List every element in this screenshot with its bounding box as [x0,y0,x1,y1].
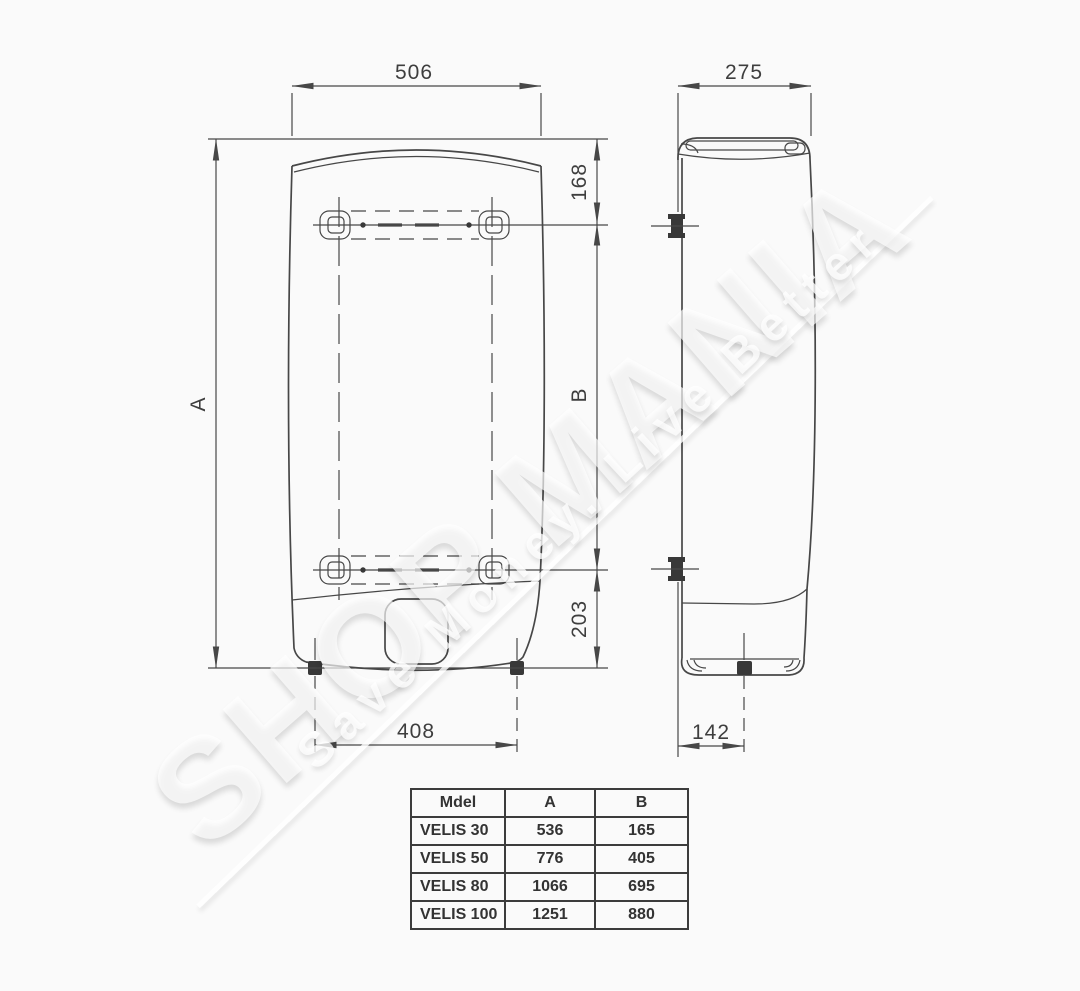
dim-506-label: 506 [395,61,433,84]
dim-142-label: 142 [692,721,730,744]
cell-a: 1251 [505,901,595,929]
cell-a: 776 [505,845,595,873]
cell-b: 165 [595,817,688,845]
side-cover-separator [682,589,807,604]
side-front-lower-edge [804,589,807,658]
front-top-cap-outer-arc [292,150,541,166]
dim-275-label: 275 [725,61,763,84]
dim-A-label: A [187,396,210,411]
cell-model: VELIS 30 [411,817,505,845]
cell-a: 1066 [505,873,595,901]
table-row: VELIS 80 1066 695 [411,873,688,901]
dim-B-label: B [568,387,591,402]
cell-model: VELIS 100 [411,901,505,929]
side-top-cap-inner [686,141,798,150]
front-right-edge [540,166,544,581]
dim-203-label: 203 [568,600,591,638]
table-row: VELIS 50 776 405 [411,845,688,873]
water-heater-dimension-sheet: 506 A 168 B 203 408 275 142 [0,0,1080,991]
cell-a: 536 [505,817,595,845]
header-b: B [595,789,688,817]
header-a: A [505,789,595,817]
side-view-drawing [651,138,815,758]
side-bottom-cap-detail-l2 [694,660,706,668]
table-header-row: Mdel A B [411,789,688,817]
model-dimension-table: Mdel A B VELIS 30 536 165 VELIS 50 776 4… [410,788,689,930]
side-top-cap-detail-left [681,144,698,153]
cell-b: 880 [595,901,688,929]
dim-168-label: 168 [568,163,591,201]
front-top-cap-seam-arc [294,157,539,173]
cell-model: VELIS 50 [411,845,505,873]
cell-model: VELIS 80 [411,873,505,901]
front-view-drawing [288,150,608,757]
dimension-annotations: 506 A 168 B 203 408 275 142 [187,61,811,757]
front-right-lower-edge [511,581,540,663]
side-pipe [737,661,752,675]
cell-b: 405 [595,845,688,873]
header-model: Mdel [411,789,505,817]
side-front-edge [807,159,815,589]
table-row: VELIS 30 536 165 [411,817,688,845]
side-upper-bracket [651,214,699,238]
upper-wall-bracket [313,211,608,239]
table-row: VELIS 100 1251 880 [411,901,688,929]
side-lower-bracket [651,557,699,581]
front-left-edge [288,166,306,662]
side-top-cap-detail-right [785,143,805,154]
lower-wall-bracket [313,556,608,584]
cell-b: 695 [595,873,688,901]
control-panel-display [385,599,448,664]
dim-408-label: 408 [397,720,435,743]
side-bottom-cap-detail-r2 [784,660,793,667]
